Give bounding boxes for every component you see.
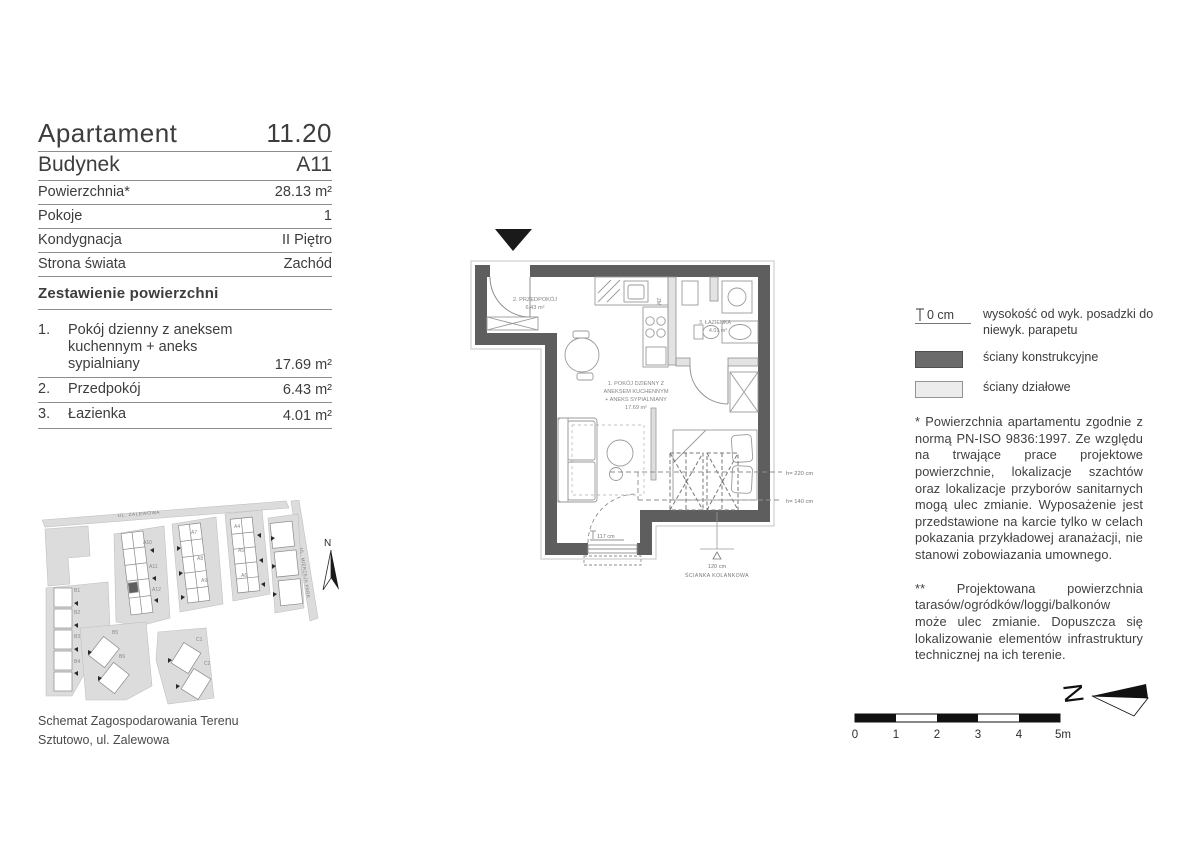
- tv: [651, 408, 656, 480]
- spec-row-area: Powierzchnia* 28.13 m²: [38, 181, 332, 205]
- bathroom-label: 3. ŁAZIENKA: [699, 320, 731, 326]
- svg-text:B5: B5: [112, 630, 118, 636]
- spec-label: Strona świata: [38, 256, 126, 272]
- north-letter: N: [324, 538, 331, 549]
- svg-text:A10: A10: [143, 540, 152, 546]
- scale-ticks: 0 1 2 3 4 5m: [852, 729, 1071, 741]
- spec-value: 1: [324, 208, 332, 224]
- dishwasher-label: ZM: [655, 298, 661, 305]
- area-summary: Zestawienie powierzchni 1. Pokój dzienny…: [38, 285, 332, 429]
- spec-row-orientation: Strona świata Zachód: [38, 253, 332, 277]
- niche-wardrobe: [730, 372, 758, 412]
- room-name: Łazienka: [68, 406, 277, 423]
- spec-row-floor: Kondygnacja II Piętro: [38, 229, 332, 253]
- floor-plan: ZM: [460, 225, 840, 615]
- row-number: 2.: [38, 381, 68, 397]
- spec-label: Powierzchnia*: [38, 184, 130, 200]
- spec-value: II Piętro: [282, 232, 332, 248]
- room-name: Pokój dzienny z aneksem kuchennym + anek…: [68, 322, 269, 373]
- window-height-label: 117 cm: [597, 534, 615, 540]
- ceiling-height-lines: [610, 472, 782, 500]
- bathroom-area: 4.01 m²: [709, 328, 727, 334]
- spec-label: Budynek: [38, 153, 120, 177]
- legend: 0 cm wysokość od wyk. posadzki do niewyk…: [915, 307, 1155, 410]
- window: [584, 494, 641, 565]
- svg-text:A9: A9: [201, 578, 207, 584]
- coffee-table: [607, 440, 633, 481]
- svg-text:3: 3: [975, 729, 981, 741]
- structural-walls: [475, 265, 770, 555]
- svg-text:1: 1: [893, 729, 899, 741]
- height-marker-icon: 0 cm: [915, 307, 971, 324]
- spec-value: Zachód: [284, 256, 332, 272]
- svg-text:4: 4: [1016, 729, 1023, 741]
- legend-label: ściany działowe: [983, 380, 1071, 396]
- footnote-terrace: ** Projektowana powierzchnia tarasów/ogr…: [915, 581, 1143, 664]
- caption-line-1: Schemat Zagospodarowania Terenu: [38, 712, 239, 731]
- svg-text:A7: A7: [191, 530, 197, 536]
- room-area: 17.69 m²: [269, 357, 332, 373]
- svg-text:0: 0: [852, 729, 858, 741]
- hall-area: 6.43 m²: [526, 305, 545, 311]
- svg-text:C1: C1: [196, 637, 203, 643]
- north-letter: N: [1058, 682, 1090, 705]
- area-row-hall: 2. Przedpokój 6.43 m²: [38, 378, 332, 403]
- legend-item-structural-walls: ściany konstrukcyjne: [915, 350, 1155, 368]
- living-label-2: ANEKSEM KUCHENNYM: [604, 389, 669, 395]
- hall-closet: [487, 317, 538, 330]
- svg-text:A4: A4: [234, 524, 240, 530]
- height-marker-text: 0 cm: [927, 308, 954, 322]
- svg-text:A5: A5: [238, 548, 244, 554]
- structural-wall-swatch: [915, 351, 963, 368]
- svg-text:5m: 5m: [1055, 729, 1071, 741]
- apartment-card-page: { "header": { "rows": [ {"label": "Apart…: [0, 0, 1200, 849]
- svg-text:B1: B1: [74, 588, 80, 594]
- living-label-3: + ANEKS SYPIALNIANY: [605, 397, 667, 403]
- svg-text:C2: C2: [204, 661, 211, 667]
- kitchen-fixtures: [595, 277, 668, 367]
- spec-value: A11: [296, 153, 332, 177]
- knee-wall-label: ŚCIANKA KOLANKOWA: [685, 571, 749, 579]
- svg-text:B4: B4: [74, 659, 80, 665]
- sloped-ceiling-wardrobe: [670, 453, 738, 510]
- spec-row-building: Budynek A11: [38, 152, 332, 181]
- spec-label: Apartament: [38, 118, 177, 149]
- living-label-1: 1. POKÓJ DZIENNY Z: [608, 380, 665, 387]
- spec-row-rooms: Pokoje 1: [38, 205, 332, 229]
- spec-row-apartment: Apartament 11.20: [38, 118, 332, 152]
- living-area: 17.69 m²: [625, 405, 647, 411]
- room-area: 6.43 m²: [277, 382, 332, 398]
- plan-north-arrow: N: [1052, 668, 1157, 723]
- partition-wall-swatch: [915, 381, 963, 398]
- height-bar-icon: [915, 307, 925, 322]
- site-plan: UL. ZALEWOWA UL. MIERZEJA PARK A10 A11 A…: [28, 500, 363, 710]
- dining-table: [565, 331, 599, 380]
- sofa: [558, 418, 597, 502]
- svg-text:B3: B3: [74, 634, 80, 640]
- footnotes: * Powierzchnia apartamentu zgodnie z nor…: [915, 414, 1143, 681]
- entrance-arrow-icon: [495, 229, 532, 251]
- bathroom-door: [690, 366, 728, 404]
- hall-label: 2. PRZEDPOKÓJ: [513, 296, 557, 303]
- svg-text:B2: B2: [74, 610, 80, 616]
- footnote-area-norm: * Powierzchnia apartamentu zgodnie z nor…: [915, 414, 1143, 564]
- site-plan-caption: Schemat Zagospodarowania Terenu Sztutowo…: [38, 712, 239, 750]
- row-number: 3.: [38, 406, 68, 422]
- spec-label: Pokoje: [38, 208, 82, 224]
- svg-text:A8: A8: [197, 556, 203, 562]
- spec-value: 28.13 m²: [275, 184, 332, 200]
- svg-text:A11: A11: [149, 564, 158, 570]
- scale-bar: 0 1 2 3 4 5m: [845, 708, 1085, 748]
- legend-item-window-height: 0 cm wysokość od wyk. posadzki do niewyk…: [915, 307, 1155, 338]
- legend-label: wysokość od wyk. posadzki do niewyk. par…: [983, 307, 1155, 338]
- area-row-bathroom: 3. Łazienka 4.01 m²: [38, 403, 332, 428]
- area-row-living: 1. Pokój dzienny z aneksem kuchennym + a…: [38, 319, 332, 378]
- room-area: 4.01 m²: [277, 408, 332, 424]
- svg-text:2: 2: [934, 729, 940, 741]
- legend-label: ściany konstrukcyjne: [983, 350, 1098, 366]
- height-140-label: h= 140 cm: [786, 499, 813, 505]
- height-220-label: h= 220 cm: [786, 471, 813, 477]
- spec-label: Kondygnacja: [38, 232, 122, 248]
- area-summary-title: Zestawienie powierzchni: [38, 285, 332, 310]
- room-name: Przedpokój: [68, 381, 277, 398]
- svg-text:A6: A6: [241, 573, 247, 579]
- row-number: 1.: [38, 322, 68, 338]
- apartment-spec-table: Apartament 11.20 Budynek A11 Powierzchni…: [38, 118, 332, 277]
- highlighted-unit: [128, 582, 138, 593]
- site-north-arrow: N: [323, 538, 339, 590]
- caption-line-2: Sztutowo, ul. Zalewowa: [38, 731, 239, 750]
- knee-wall-height: 120 cm: [708, 564, 727, 570]
- svg-text:B6: B6: [119, 654, 125, 660]
- needle-light-half: [1092, 696, 1148, 716]
- svg-text:A12: A12: [152, 587, 161, 593]
- spec-value: 11.20: [266, 118, 332, 149]
- legend-item-partition-walls: ściany działowe: [915, 380, 1155, 398]
